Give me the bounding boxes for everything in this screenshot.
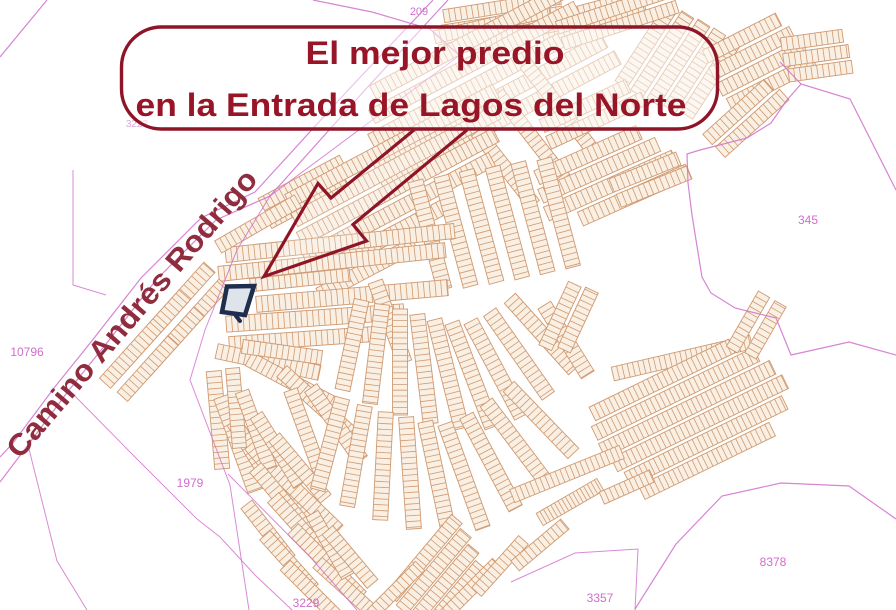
svg-text:209: 209 — [410, 6, 428, 18]
svg-text:3357: 3357 — [587, 591, 614, 605]
svg-text:1979: 1979 — [177, 476, 204, 490]
svg-text:8378: 8378 — [760, 555, 787, 569]
svg-text:en la Entrada de Lagos del Nor: en la Entrada de Lagos del Norte — [136, 87, 687, 123]
svg-text:El mejor predio: El mejor predio — [306, 35, 565, 71]
svg-text:345: 345 — [798, 213, 818, 227]
svg-text:3229: 3229 — [293, 596, 320, 610]
svg-text:10796: 10796 — [10, 345, 44, 359]
